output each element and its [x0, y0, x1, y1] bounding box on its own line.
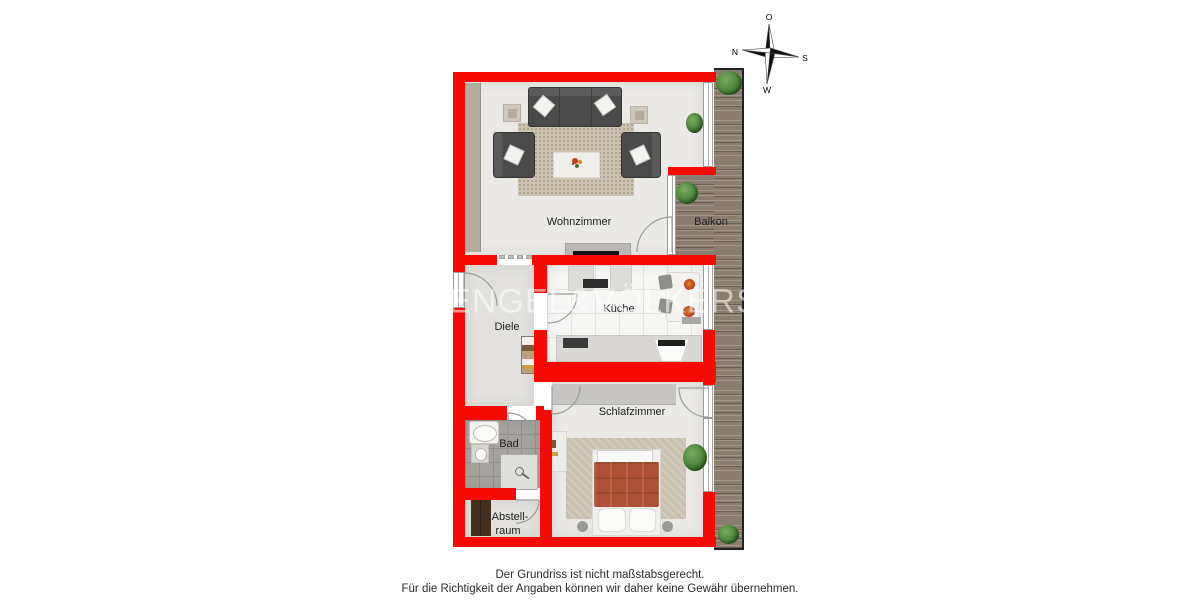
- wall-segment: [534, 330, 547, 362]
- wall-segment: [532, 255, 716, 265]
- side-table-right: [630, 106, 648, 124]
- floor-plan-page: O N S W Wohnzimmer Balkon Küche Diele Sc…: [0, 0, 1200, 600]
- table-flowers: [572, 158, 578, 164]
- plant: [718, 525, 739, 544]
- side-table-left: [503, 104, 521, 122]
- wohnzimmer-window: [703, 82, 713, 167]
- side-table-inner: [635, 111, 644, 120]
- bed-pillow: [628, 507, 656, 532]
- nightstand: [662, 521, 673, 532]
- plant: [676, 182, 698, 204]
- disclaimer-line1: Der Grundriss ist nicht maßstabsgerecht.: [0, 568, 1200, 582]
- wall-segment: [453, 255, 497, 265]
- nightstand: [577, 521, 588, 532]
- storage-wardrobe: [471, 499, 491, 536]
- plant: [683, 444, 707, 471]
- wall-segment: [703, 492, 715, 537]
- room-label-abstell-line2: raum: [495, 525, 520, 537]
- bed-blanket: [594, 462, 659, 507]
- room-label-balkon: Balkon: [694, 216, 728, 228]
- room-label-wohnzimmer: Wohnzimmer: [547, 216, 612, 228]
- compass-letter-east: O: [766, 12, 773, 22]
- bedroom-wardrobe: [552, 384, 676, 405]
- wall-segment: [534, 362, 716, 382]
- wall-segment: [453, 308, 465, 547]
- counter-appliance: [563, 338, 588, 348]
- room-label-diele: Diele: [494, 321, 519, 333]
- wall-segment: [536, 406, 544, 420]
- room-label-abstell-line1: Abstell-: [492, 511, 529, 523]
- shower-hose: [521, 473, 529, 479]
- room-label-schlafzimmer: Schlafzimmer: [599, 406, 666, 418]
- wall-segment: [453, 72, 465, 272]
- wall-segment: [453, 72, 716, 82]
- disclaimer-text: Der Grundriss ist nicht maßstabsgerecht.…: [0, 568, 1200, 596]
- balkon-glass-wall: [667, 175, 676, 255]
- bathtub-basin: [473, 425, 497, 442]
- compass-letter-south: S: [802, 53, 808, 63]
- passage-tick: [517, 255, 523, 259]
- plant: [686, 113, 703, 133]
- shower: [500, 454, 538, 490]
- compass-letter-north: N: [732, 47, 738, 57]
- side-table-inner: [508, 109, 517, 118]
- passage-tick: [508, 255, 514, 259]
- bath-sink: [471, 444, 489, 463]
- wall-segment: [453, 488, 516, 500]
- wall-segment: [668, 167, 716, 175]
- compass-letter-west: W: [763, 85, 771, 95]
- passage-tick: [499, 255, 505, 259]
- schlafzimmer-balcony-door-strip: [703, 385, 713, 418]
- hall-shelf: [521, 336, 535, 374]
- wall-segment: [453, 406, 507, 420]
- coffee-table-mat: [553, 152, 600, 178]
- kitchen-sink-bar: [658, 340, 685, 346]
- compass-rose: O N S W: [725, 5, 815, 100]
- disclaimer-line2: Für die Richtigkeit der Angaben können w…: [0, 582, 1200, 596]
- bed-pillow: [597, 507, 626, 532]
- wall-segment: [540, 410, 552, 537]
- room-label-bad: Bad: [499, 438, 519, 450]
- wardrobe-tall: [465, 83, 481, 252]
- wall-segment: [453, 537, 716, 547]
- bad-door-gap: [507, 406, 536, 420]
- bath-sink-basin: [475, 448, 487, 461]
- bathtub: [469, 421, 499, 444]
- brand-watermark: ENGEL&VÖLKERS: [448, 283, 760, 322]
